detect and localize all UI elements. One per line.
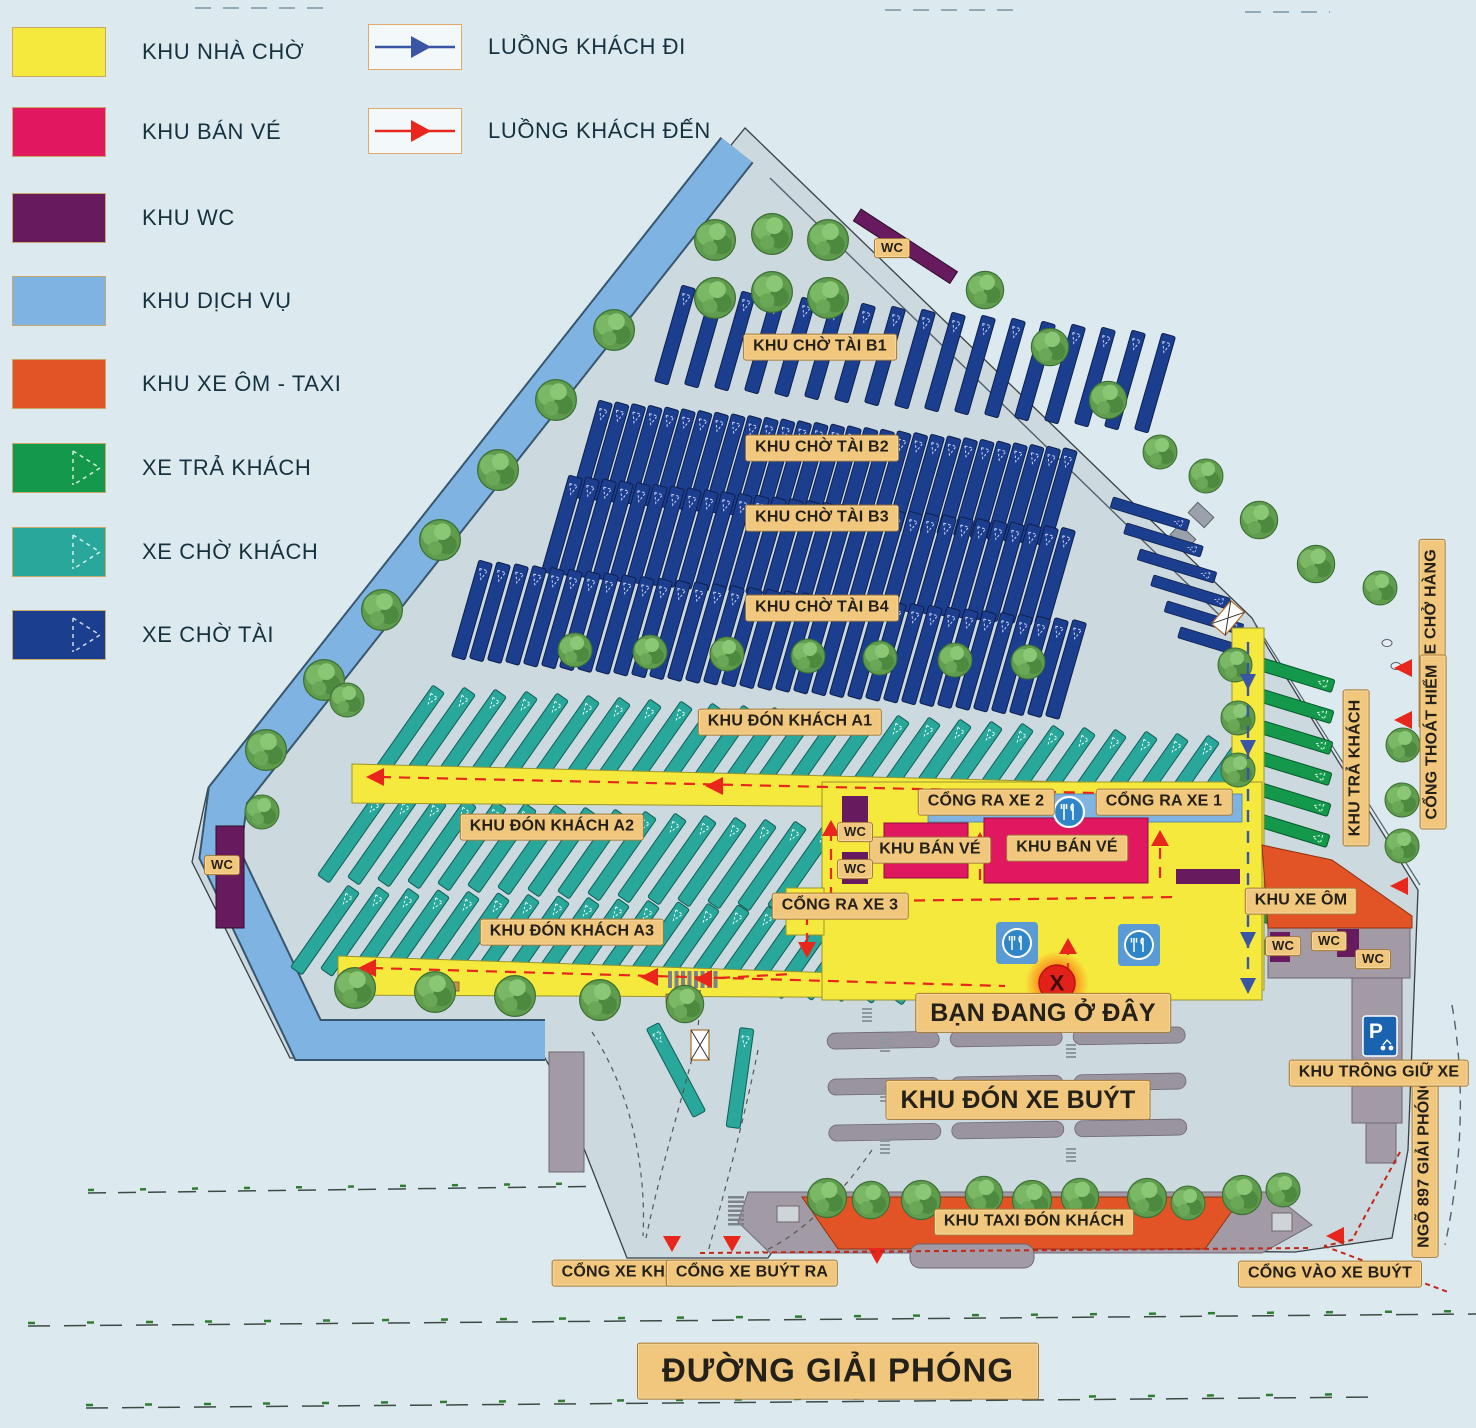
legend-item-xe-cho-tai: XE CHỜ TÀI (12, 610, 274, 660)
legend-swatch-khu-nha-cho (12, 27, 106, 77)
wc-block-left (216, 826, 244, 928)
legend-item-khu-ban-ve: KHU BÁN VÉ (12, 107, 281, 157)
label-khu-don-khach-a1: KHU ĐÓN KHÁCH A1 (698, 709, 882, 736)
label-cong-thoat-hiem: CỔNG THOÁT HIỂM (1420, 655, 1447, 830)
label-cong-ra-xe-1: CỔNG RA XE 1 (1096, 789, 1233, 816)
side-road (1445, 1005, 1460, 1245)
label-khu-cho-tai-b2: KHU CHỜ TÀI B2 (745, 435, 899, 462)
you-are-here-x: X (1041, 967, 1074, 998)
label-khu-trong-giu-xe: KHU TRÔNG GIỮ XE (1289, 1060, 1469, 1087)
legend-swatch-khu-wc (12, 193, 106, 243)
label-khu-tra-khach: KHU TRẢ KHÁCH (1343, 690, 1370, 847)
legend-item-khu-wc: KHU WC (12, 193, 235, 243)
label-you-are-here: BẠN ĐANG Ở ĐÂY (915, 993, 1171, 1033)
legend-swatch-khu-ban-ve (12, 107, 106, 157)
label-khu-don-khach-a3: KHU ĐÓN KHÁCH A3 (480, 919, 664, 946)
top-road-fragments (195, 8, 1330, 12)
wc-block-hall-1 (842, 796, 868, 822)
label-wc: WC (204, 855, 240, 875)
label-wc: WC (837, 822, 873, 842)
wc-block-hall-3 (1176, 869, 1240, 884)
label-khu-cho-tai-b4: KHU CHỜ TÀI B4 (745, 595, 899, 622)
label-khu-taxi-don-khach: KHU TAXI ĐÓN KHÁCH (934, 1209, 1134, 1236)
label-cong-ra-xe-2: CỔNG RA XE 2 (918, 789, 1055, 816)
parking-p-glyph: P (1360, 1017, 1392, 1047)
bus-station-map: KHU NHÀ CHỜ KHU BÁN VÉ KHU WC KHU DỊCH V… (0, 0, 1476, 1428)
legend-flow-den-icon (368, 108, 462, 154)
legend-swatch-xe-cho-tai (12, 610, 106, 660)
legend-swatch-xe-tra-khach (12, 443, 106, 493)
label-khu-ban-ve-right: KHU BÁN VÉ (1006, 835, 1128, 862)
label-cong-xe-buyt-ra: CỔNG XE BUÝT RA (666, 1260, 838, 1287)
label-wc: WC (1355, 949, 1391, 969)
label-khu-don-khach-a2: KHU ĐÓN KHÁCH A2 (460, 814, 644, 841)
gate-symbol (691, 1030, 709, 1060)
label-khu-cho-tai-b1: KHU CHỜ TÀI B1 (743, 334, 897, 361)
legend-item-khu-dich-vu: KHU DỊCH VỤ (12, 276, 292, 326)
legend-item-luong-khach-den: LUỒNG KHÁCH ĐẾN (368, 108, 711, 154)
label-wc: WC (1311, 931, 1347, 951)
label-khu-don-xe-buyt: KHU ĐÓN XE BUÝT (886, 1080, 1151, 1120)
restaurant-icon (1054, 797, 1084, 827)
restaurant-icon (1118, 924, 1160, 966)
restaurant-icon (996, 922, 1038, 964)
legend-swatch-xe-cho-khach (12, 527, 106, 577)
legend-item-xe-cho-khach: XE CHỜ KHÁCH (12, 527, 318, 577)
legend-item-luong-khach-di: LUỒNG KHÁCH ĐI (368, 24, 686, 70)
label-wc: WC (1265, 936, 1301, 956)
label-khu-ban-ve-left: KHU BÁN VÉ (869, 837, 991, 864)
legend-swatch-khu-dich-vu (12, 276, 106, 326)
label-wc: WC (874, 238, 910, 258)
label-duong-giai-phong: ĐƯỜNG GIẢI PHÓNG (637, 1343, 1039, 1400)
label-khu-xe-om: KHU XE ÔM (1245, 888, 1357, 915)
label-ngo-897-giai-phong: NGÕ 897 GIẢI PHÓNG (1412, 1066, 1439, 1258)
legend-flow-di-icon (368, 24, 462, 70)
legend-item-xe-tra-khach: XE TRẢ KHÁCH (12, 443, 311, 493)
label-khu-cho-tai-b3: KHU CHỜ TÀI B3 (745, 505, 899, 532)
label-wc: WC (837, 859, 873, 879)
legend-item-khu-xe-om-taxi: KHU XE ÔM - TAXI (12, 359, 341, 409)
legend-item-khu-nha-cho: KHU NHÀ CHỜ (12, 27, 304, 77)
label-cong-vao-xe-buyt: CỔNG VÀO XE BUÝT (1238, 1261, 1422, 1288)
label-cong-ra-xe-3: CỔNG RA XE 3 (772, 893, 909, 920)
legend-swatch-khu-xe-om-taxi (12, 359, 106, 409)
